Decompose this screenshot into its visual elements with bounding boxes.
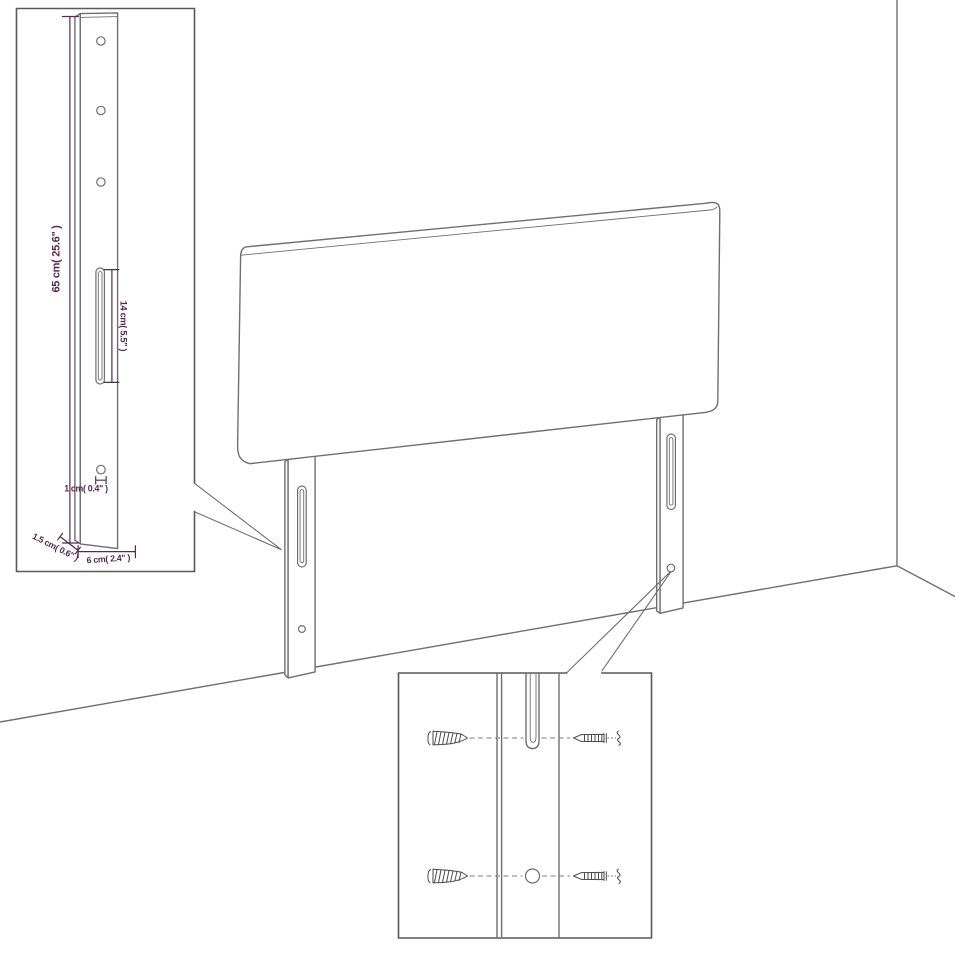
callout-lines-right-leg [567,572,671,673]
leg-slot [96,268,105,384]
leg-screw-hole [667,564,675,572]
leg-detail-drawing [75,13,118,549]
headboard-leg-left [285,456,315,678]
headboard-leg-right [657,414,683,613]
slot-dimension-label: 14 cm( 5.5" ) [119,301,129,352]
panel-face [238,202,720,463]
callout-lines-left-leg [195,483,282,549]
leg-screw-hole [526,869,540,883]
leg-small-hole [97,465,106,474]
leg-detail-inset: 65 cm( 25.6" ) 14 cm( 5.5" ) 1 cm( 0.4" … [17,9,195,572]
diagram-page: 65 cm( 25.6" ) 14 cm( 5.5" ) 1 cm( 0.4" … [0,0,955,955]
leg-screw-hole [299,626,306,633]
leg-side-face [75,14,80,544]
inset-background [399,673,652,938]
hole-dimension-label: 1 cm( 0.4" ) [64,484,108,494]
floor-line-right [897,566,955,597]
headboard-panel [238,202,720,463]
leg-hole-3 [97,178,105,186]
height-dimension-label: 65 cm( 25.6" ) [51,225,63,293]
leg-hole-2 [97,106,105,114]
leg-slot [298,486,307,567]
leg-slot [667,434,676,510]
headboard-dimension-diagram: 65 cm( 25.6" ) 14 cm( 5.5" ) 1 cm( 0.4" … [0,0,955,955]
leg-hole-1 [97,37,105,45]
mounting-detail-inset [399,673,652,938]
